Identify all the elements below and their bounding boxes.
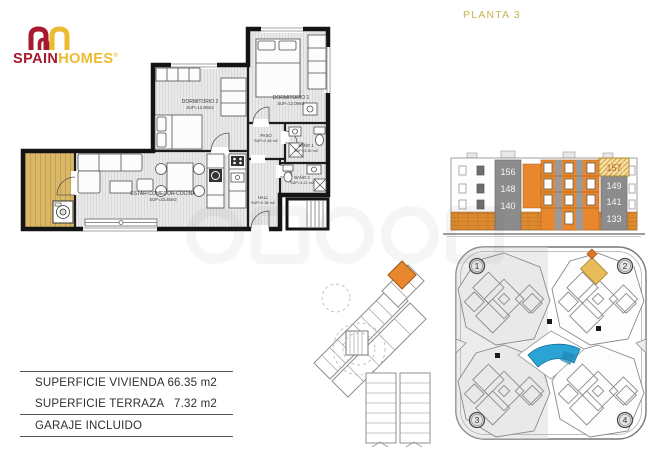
sector-badge: 2 [618,259,633,274]
sector-badge: 3 [470,413,485,428]
armchair [137,179,153,191]
garage-note: GARAJE INCLUIDO [35,420,142,432]
row-value: 7.32 m2 [174,398,217,410]
center-tower [541,160,599,230]
room-name: BAÑO 1 [298,143,314,148]
room-name: HALL [258,195,269,200]
sector-number: 3 [475,415,480,425]
room-area: SUP=3.30 m2 [294,149,318,153]
table-row: GARAJE INCLUIDO [20,415,233,436]
room-area: SUP=12.09m2 [277,101,305,106]
block-plan [296,243,458,448]
parking-stalls [366,373,430,447]
unit-number: 133 [606,214,621,224]
room-name: PASO [260,133,272,138]
row-label: SUPERFICIE VIVIENDA [35,377,165,389]
row-value: 66.35 m2 [167,377,217,389]
site-plan-drawing: 1 2 3 4 [456,247,646,439]
room-area: SUP=3.22 m2 [290,181,314,185]
unit-number: 148 [500,184,515,194]
table-row: SUPERFICIE TERRAZA 7.32 m2 [20,393,233,414]
watermark-shape [446,206,504,264]
window-sill [85,219,157,226]
table-divider [20,436,233,437]
sector-number: 4 [623,415,628,425]
table-row: SUPERFICIE VIVIENDA 66.35 m2 [20,372,233,393]
room-area: SUP=2.38 m2 [251,201,275,205]
room-area: SUP=23.45m2 [149,197,177,202]
unit-number: 156 [500,167,515,177]
watermark-shape [316,206,374,264]
washing-machine [53,201,73,223]
sector-number: 2 [623,261,628,271]
sector-badge: 4 [618,413,633,428]
watermark-shape [251,206,309,264]
watermark-shape [381,206,439,264]
room-area: SUP=2.48 m2 [254,139,278,143]
unit-number: 149 [606,181,621,191]
watermark [186,206,504,264]
unit-number: 141 [606,197,621,207]
summary-table: SUPERFICIE VIVIENDA 66.35 m2 SUPERFICIE … [20,371,233,437]
room-name: BAÑO 2 [294,175,310,180]
unit-number-highlighted: 157 [606,163,621,173]
watermark-shape [186,206,244,264]
site-plan: 1 2 3 4 [452,243,650,448]
block-plan-drawing [314,261,430,447]
coffee-table [110,181,132,193]
row-label: SUPERFICIE TERRAZA [35,398,164,410]
floor-label: PLANTA 3 [463,9,521,21]
right-facade-windows [629,166,635,209]
room-area: SUP=12.05m2 [186,105,214,110]
flyer-page: SPAINHOMES® PLANTA 3 [0,0,650,450]
